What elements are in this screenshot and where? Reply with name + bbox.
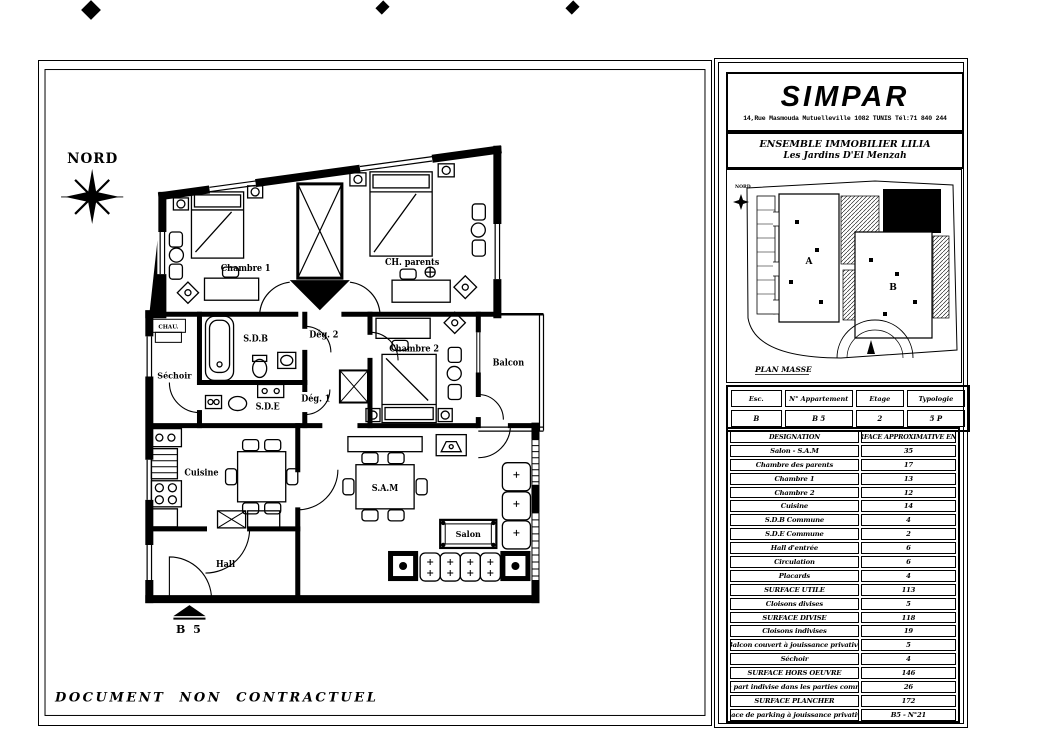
surface-row-label: Hall d'entrée	[730, 542, 859, 554]
surface-table: DESIGNATION SURFACE APPROXIMATIVE EN M² …	[726, 427, 960, 723]
surface-header-surface: SURFACE APPROXIMATIVE EN M²	[861, 431, 956, 443]
surface-row-label: Séchoir	[730, 653, 859, 665]
surface-row-value: 4	[861, 570, 956, 582]
surface-row-value: 17	[861, 459, 956, 471]
crop-mark	[375, 0, 389, 14]
surface-row-label: Salon - S.A.M	[730, 445, 859, 457]
apartment-info-value-3: 5 P	[907, 410, 965, 427]
info-panel-frame: SIMPAR 14,Rue Masmouda Mutuelleville 108…	[718, 62, 964, 724]
surface-row-value: 6	[861, 556, 956, 568]
surface-header-designation: DESIGNATION	[730, 431, 859, 443]
wardrobe	[260, 184, 380, 314]
surface-table-rows: Salon - S.A.M35Chambre des parents17Cham…	[730, 445, 956, 721]
block-a-label: A	[805, 257, 814, 267]
surface-row: SURFACE PLANCHER172	[730, 695, 956, 707]
apartment-info-value-2: 2	[856, 410, 904, 427]
surface-row-value: 5	[861, 639, 956, 651]
apartment-info-value-0: B	[731, 410, 782, 427]
apartment-info-header-2: Etage	[856, 390, 904, 407]
surface-row-label: SURFACE UTILE	[730, 584, 859, 596]
apartment-info-value-1: B 5	[785, 410, 853, 427]
surface-row-value: 146	[861, 667, 956, 679]
surface-row-value: 118	[861, 612, 956, 624]
site-plan-label: PLAN MASSE	[754, 365, 812, 374]
surface-row-label: SURFACE DIVISE	[730, 612, 859, 624]
surface-row-label: S.D.B Commune	[730, 514, 859, 526]
surface-row-value: 2	[861, 528, 956, 540]
parents-furniture	[350, 164, 485, 302]
surface-row: SURFACE HORS OEUVRE146	[730, 667, 956, 679]
surface-row: Chambre des parents17	[730, 459, 956, 471]
surface-row: Placards4	[730, 570, 956, 582]
plan-sheet: NORD	[38, 60, 712, 726]
company-logo: SIMPAR	[781, 82, 910, 112]
placard	[340, 370, 368, 402]
site-plan: NORD A B PLAN MASSE	[727, 170, 961, 382]
room-label-salon: Salon	[456, 529, 481, 539]
surface-row: SURFACE UTILE113	[730, 584, 956, 596]
site-plan-north-label: NORD	[735, 184, 751, 190]
surface-row-value: 14	[861, 500, 956, 512]
room-label-sde: S.D.E	[256, 403, 280, 413]
crop-mark	[81, 0, 101, 20]
surface-row-label: Cloisons divises	[730, 598, 859, 610]
surface-row: Quote part indivise dans les parties com…	[730, 681, 956, 693]
bathroom-fixtures	[205, 316, 295, 380]
surface-row-label: Cuisine	[730, 500, 859, 512]
room-label-deg2: Dég. 2	[309, 329, 338, 340]
surface-row-value: 113	[861, 584, 956, 596]
surface-row-label: Cloisons indivises	[730, 625, 859, 637]
project-title: ENSEMBLE IMMOBILIER LILIA	[759, 139, 930, 151]
apartment-info-header-3: Typologie	[907, 390, 965, 407]
surface-row: Chambre 212	[730, 487, 956, 499]
surface-row-label: Chambre 2	[730, 487, 859, 499]
surface-row: S.D.E Commune2	[730, 528, 956, 540]
surface-row-label: Chambre 1	[730, 473, 859, 485]
room-label-balcon: Balcon	[493, 358, 525, 368]
project-subtitle: Les Jardins D'El Menzah	[783, 151, 906, 162]
room-label-parents: CH. parents	[385, 258, 440, 268]
apartment-info-header-0: Esc.	[731, 390, 782, 407]
info-panel: SIMPAR 14,Rue Masmouda Mutuelleville 108…	[714, 58, 968, 728]
surface-row-value: 4	[861, 653, 956, 665]
surface-row: Hall d'entrée6	[730, 542, 956, 554]
room-label-chau: CHAU.	[158, 324, 178, 330]
surface-row-value: 6	[861, 542, 956, 554]
floor-plan: NORD	[39, 61, 711, 725]
surface-row-label: Quote part indivise dans les parties com…	[730, 681, 859, 693]
balcony-walls	[478, 314, 543, 431]
room-label-sdb: S.D.B	[243, 334, 268, 344]
kitchen-furniture	[151, 429, 297, 528]
north-compass-icon: NORD	[61, 151, 123, 224]
surface-row: Salon - S.A.M35	[730, 445, 956, 457]
surface-row: Place de parking à jouissance privativeB…	[730, 709, 956, 721]
surface-row-value: 12	[861, 487, 956, 499]
disclaimer-text: DOCUMENT NON CONTRACTUEL	[54, 690, 378, 705]
chambre1-furniture	[169, 186, 262, 303]
surface-row: Cloisons indivises19	[730, 625, 956, 637]
room-label-chambre2: Chambre 2	[389, 344, 439, 354]
surface-row-label: Circulation	[730, 556, 859, 568]
company-box: SIMPAR 14,Rue Masmouda Mutuelleville 108…	[726, 72, 964, 132]
surface-row: S.D.B Commune4	[730, 514, 956, 526]
entrance-marker	[173, 605, 205, 619]
company-address: 14,Rue Masmouda Mutuelleville 1082 TUNIS…	[743, 115, 947, 122]
crop-mark	[565, 0, 579, 14]
room-label-cuisine: Cuisine	[184, 469, 218, 479]
surface-row: Chambre 113	[730, 473, 956, 485]
chambre2-furniture	[366, 312, 465, 422]
surface-row: SURFACE DIVISE118	[730, 612, 956, 624]
apartment-info-grid: Esc.N° AppartementEtageTypologieBB 525 P	[731, 390, 965, 427]
water-heater	[151, 319, 185, 342]
surface-row-value: 13	[861, 473, 956, 485]
surface-row-label: Placards	[730, 570, 859, 582]
apartment-info-table: Esc.N° AppartementEtageTypologieBB 525 P	[726, 385, 970, 432]
surface-table-header: DESIGNATION SURFACE APPROXIMATIVE EN M²	[730, 431, 956, 443]
room-label-hall: Hall	[216, 560, 235, 570]
surface-row-value: 19	[861, 625, 956, 637]
surface-row-value: B5 - N°21	[861, 709, 956, 721]
block-b-label: B	[889, 283, 897, 293]
surface-row-label: Chambre des parents	[730, 459, 859, 471]
north-label: NORD	[67, 151, 118, 167]
surface-row-value: 172	[861, 695, 956, 707]
room-label-deg1: Dég. 1	[301, 394, 330, 405]
surface-row-label: SURFACE PLANCHER	[730, 695, 859, 707]
room-label-sechoir: Séchoir	[157, 370, 192, 380]
surface-row-value: 5	[861, 598, 956, 610]
surface-row-value: 26	[861, 681, 956, 693]
surface-row-label: Balcon couvert à jouissance privative	[730, 639, 859, 651]
site-plan-drawing	[733, 181, 957, 358]
surface-row: Séchoir4	[730, 653, 956, 665]
surface-row-label: SURFACE HORS OEUVRE	[730, 667, 859, 679]
surface-row-label: S.D.E Commune	[730, 528, 859, 540]
room-label-sam: S.A.M	[372, 484, 398, 494]
site-plan-box: NORD A B PLAN MASSE	[726, 169, 962, 383]
surface-row-value: 35	[861, 445, 956, 457]
room-label-chambre1: Chambre 1	[221, 264, 271, 274]
project-box: ENSEMBLE IMMOBILIER LILIA Les Jardins D'…	[726, 132, 964, 169]
surface-row-label: Place de parking à jouissance privative	[730, 709, 859, 721]
surface-row: Cloisons divises5	[730, 598, 956, 610]
surface-row-value: 4	[861, 514, 956, 526]
apartment-info-header-1: N° Appartement	[785, 390, 853, 407]
surface-row: Cuisine14	[730, 500, 956, 512]
entrance-label: B 5	[176, 623, 203, 636]
document-page: NORD	[0, 0, 1039, 732]
surface-row: Balcon couvert à jouissance privative5	[730, 639, 956, 651]
surface-row: Circulation6	[730, 556, 956, 568]
